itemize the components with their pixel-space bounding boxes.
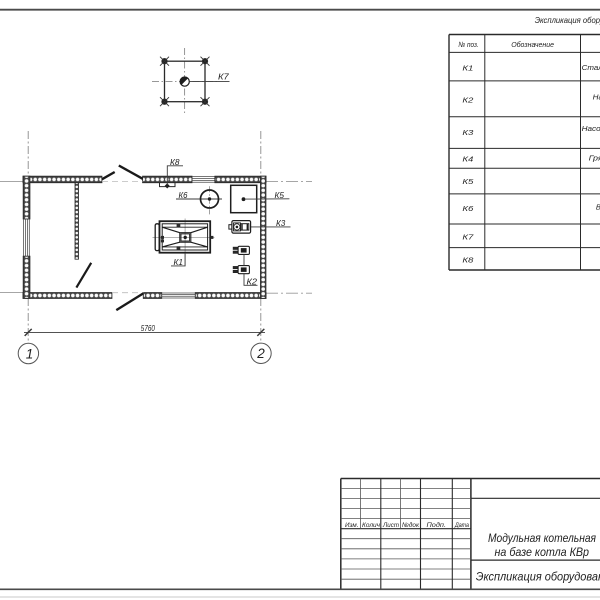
svg-text:Изм.: Изм. — [345, 522, 359, 529]
svg-text:Стальной котёл: Стальной котёл — [582, 63, 600, 72]
svg-text:№док: №док — [402, 521, 420, 529]
svg-text:Подп.: Подп. — [427, 521, 447, 529]
svg-text:Экспликация оборудования: Экспликация оборудования — [535, 15, 600, 25]
svg-text:Лист: Лист — [382, 522, 399, 529]
svg-text:Колич: Колич — [362, 522, 380, 529]
svg-text:Насос: Насос — [582, 124, 600, 133]
svg-text:на базе котла КВр: на базе котла КВр — [495, 545, 590, 559]
svg-text:К8: К8 — [170, 158, 180, 167]
svg-text:К7: К7 — [218, 72, 229, 82]
svg-text:Вентилятор: Вентилятор — [596, 203, 600, 212]
svg-text:К4: К4 — [462, 155, 473, 164]
svg-text:Экспликация оборудования: Экспликация оборудования — [476, 569, 600, 583]
svg-text:К6: К6 — [179, 191, 189, 200]
svg-text:К2: К2 — [247, 278, 258, 287]
svg-text:К3: К3 — [462, 128, 474, 137]
svg-text:К8: К8 — [462, 256, 474, 265]
svg-text:5760: 5760 — [141, 323, 155, 333]
svg-text:К5: К5 — [275, 191, 285, 200]
svg-text:Насос: Насос — [593, 93, 600, 102]
svg-text:Обозначение: Обозначение — [511, 40, 554, 49]
svg-text:К3: К3 — [276, 219, 286, 228]
svg-text:К2: К2 — [462, 96, 474, 105]
svg-text:К1: К1 — [174, 258, 184, 267]
svg-text:1: 1 — [26, 346, 34, 361]
svg-text:Модульная котельная: Модульная котельная — [488, 531, 596, 545]
svg-text:К5: К5 — [462, 177, 474, 186]
svg-text:2: 2 — [256, 346, 265, 361]
svg-text:К6: К6 — [462, 204, 474, 213]
svg-text:Грязевик: Грязевик — [589, 154, 600, 163]
svg-text:К7: К7 — [462, 233, 474, 242]
svg-text:№ поз.: № поз. — [458, 40, 478, 49]
svg-text:К1: К1 — [462, 64, 473, 73]
svg-text:Дата: Дата — [454, 522, 469, 529]
